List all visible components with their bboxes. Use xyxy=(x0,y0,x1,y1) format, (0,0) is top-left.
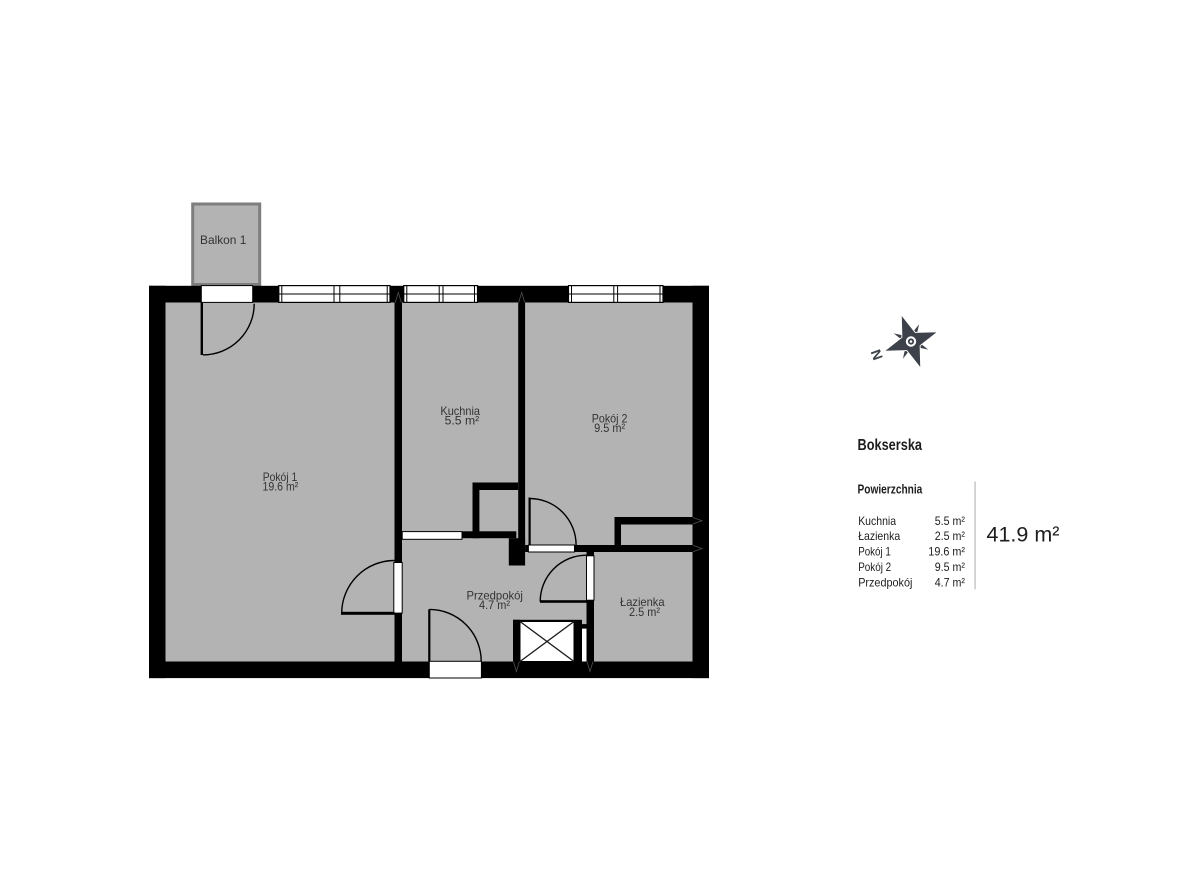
svg-text:Powierzchnia: Powierzchnia xyxy=(858,483,924,497)
svg-text:2.5 m²: 2.5 m² xyxy=(935,529,965,543)
svg-text:Bokserska: Bokserska xyxy=(858,437,923,454)
svg-text:41.9 m²: 41.9 m² xyxy=(987,523,1060,547)
svg-text:9.5 m²: 9.5 m² xyxy=(935,560,965,574)
svg-text:Łazienka: Łazienka xyxy=(858,529,900,543)
svg-text:19.6 m²: 19.6 m² xyxy=(263,480,299,494)
svg-text:19.6 m²: 19.6 m² xyxy=(928,544,965,558)
svg-text:4.7 m²: 4.7 m² xyxy=(479,598,510,612)
svg-text:Pokój 2: Pokój 2 xyxy=(858,560,891,574)
svg-text:Pokój 1: Pokój 1 xyxy=(858,544,891,558)
svg-text:4.7 m²: 4.7 m² xyxy=(935,575,965,589)
svg-text:5.5 m²: 5.5 m² xyxy=(445,414,480,428)
svg-text:Balkon 1: Balkon 1 xyxy=(200,233,246,247)
svg-text:9.5 m²: 9.5 m² xyxy=(594,421,625,435)
svg-text:5.5 m²: 5.5 m² xyxy=(935,514,965,528)
svg-text:Przedpokój: Przedpokój xyxy=(858,575,912,589)
svg-text:N: N xyxy=(867,347,885,362)
svg-text:Kuchnia: Kuchnia xyxy=(858,514,896,528)
svg-text:2.5 m²: 2.5 m² xyxy=(629,605,660,619)
